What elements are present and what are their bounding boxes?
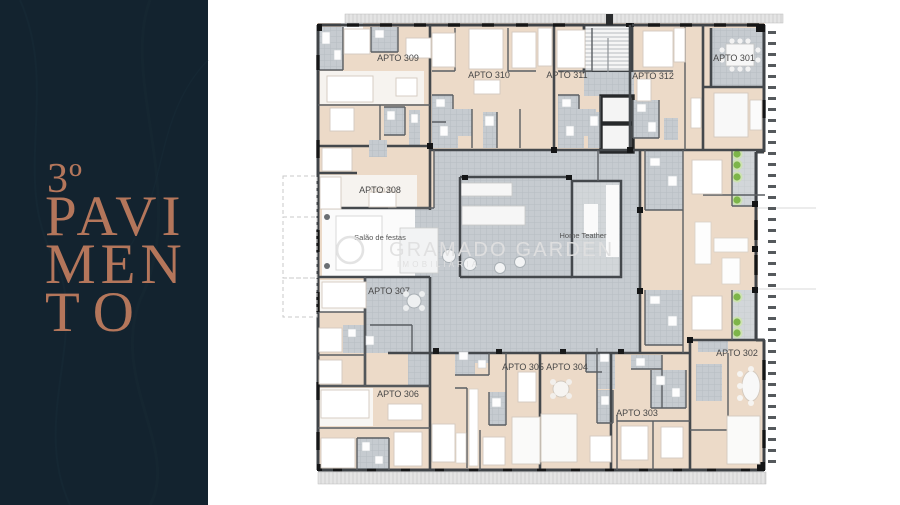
svg-text:TO: TO bbox=[45, 281, 148, 344]
svg-text:APTO 303: APTO 303 bbox=[616, 408, 658, 418]
svg-text:APTO 310: APTO 310 bbox=[468, 70, 510, 80]
svg-text:APTO 308: APTO 308 bbox=[359, 185, 401, 195]
svg-text:APTO 306: APTO 306 bbox=[377, 389, 419, 399]
svg-text:APTO 305: APTO 305 bbox=[502, 362, 544, 372]
svg-text:APTO 301: APTO 301 bbox=[713, 53, 755, 63]
svg-text:APTO 309: APTO 309 bbox=[377, 53, 419, 63]
svg-text:APTO 304: APTO 304 bbox=[546, 362, 588, 372]
svg-text:APTO 312: APTO 312 bbox=[632, 71, 674, 81]
svg-text:GRAMADO GARDEN: GRAMADO GARDEN bbox=[389, 239, 614, 261]
svg-text:APTO 311: APTO 311 bbox=[546, 70, 587, 80]
svg-text:APTO 302: APTO 302 bbox=[716, 348, 758, 358]
svg-text:IMOBILIÁRIA: IMOBILIÁRIA bbox=[397, 260, 480, 269]
